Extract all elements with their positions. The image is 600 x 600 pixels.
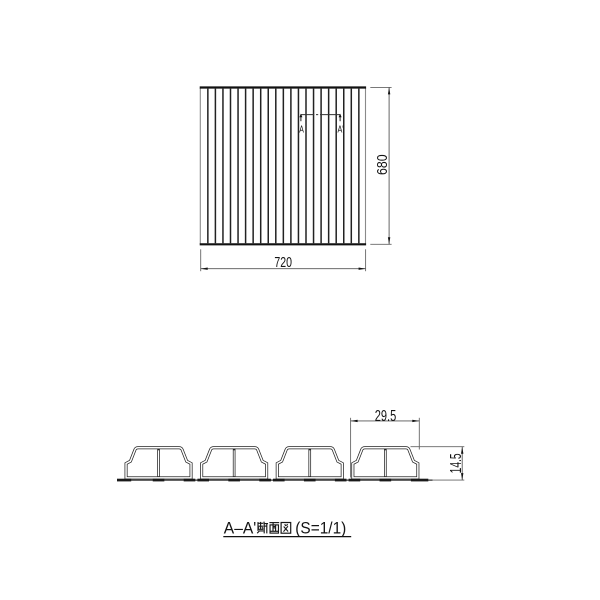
svg-text:680: 680: [374, 154, 391, 175]
svg-text:A: A: [299, 125, 304, 136]
svg-text:A–A': A–A': [224, 518, 256, 537]
svg-text:720: 720: [274, 254, 292, 271]
svg-text:(S=1/1): (S=1/1): [295, 518, 346, 537]
svg-text:14.5: 14.5: [448, 453, 465, 473]
svg-text:29.5: 29.5: [375, 408, 397, 425]
svg-text:A': A': [338, 125, 344, 136]
